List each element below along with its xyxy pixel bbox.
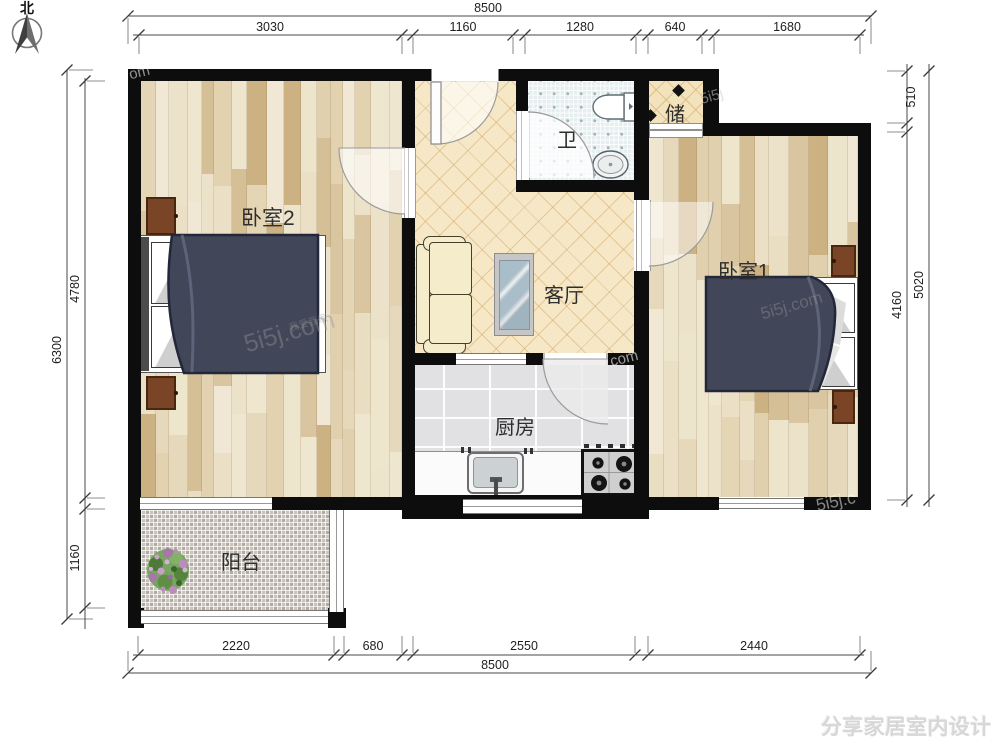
svg-text:2550: 2550 xyxy=(510,639,538,653)
svg-text:3030: 3030 xyxy=(256,20,284,34)
svg-text:680: 680 xyxy=(363,639,384,653)
svg-text:2220: 2220 xyxy=(222,639,250,653)
svg-text:8500: 8500 xyxy=(481,658,509,672)
svg-text:510: 510 xyxy=(904,87,918,108)
svg-text:640: 640 xyxy=(665,20,686,34)
svg-text:4160: 4160 xyxy=(890,291,904,319)
svg-text:2440: 2440 xyxy=(740,639,768,653)
svg-text:1160: 1160 xyxy=(450,20,477,34)
svg-text:1160: 1160 xyxy=(68,545,82,572)
svg-text:1680: 1680 xyxy=(773,20,801,34)
svg-text:4780: 4780 xyxy=(68,275,82,303)
svg-text:8500: 8500 xyxy=(474,1,502,15)
svg-text:6300: 6300 xyxy=(50,336,64,364)
svg-text:1280: 1280 xyxy=(566,20,594,34)
svg-text:5020: 5020 xyxy=(912,271,926,299)
